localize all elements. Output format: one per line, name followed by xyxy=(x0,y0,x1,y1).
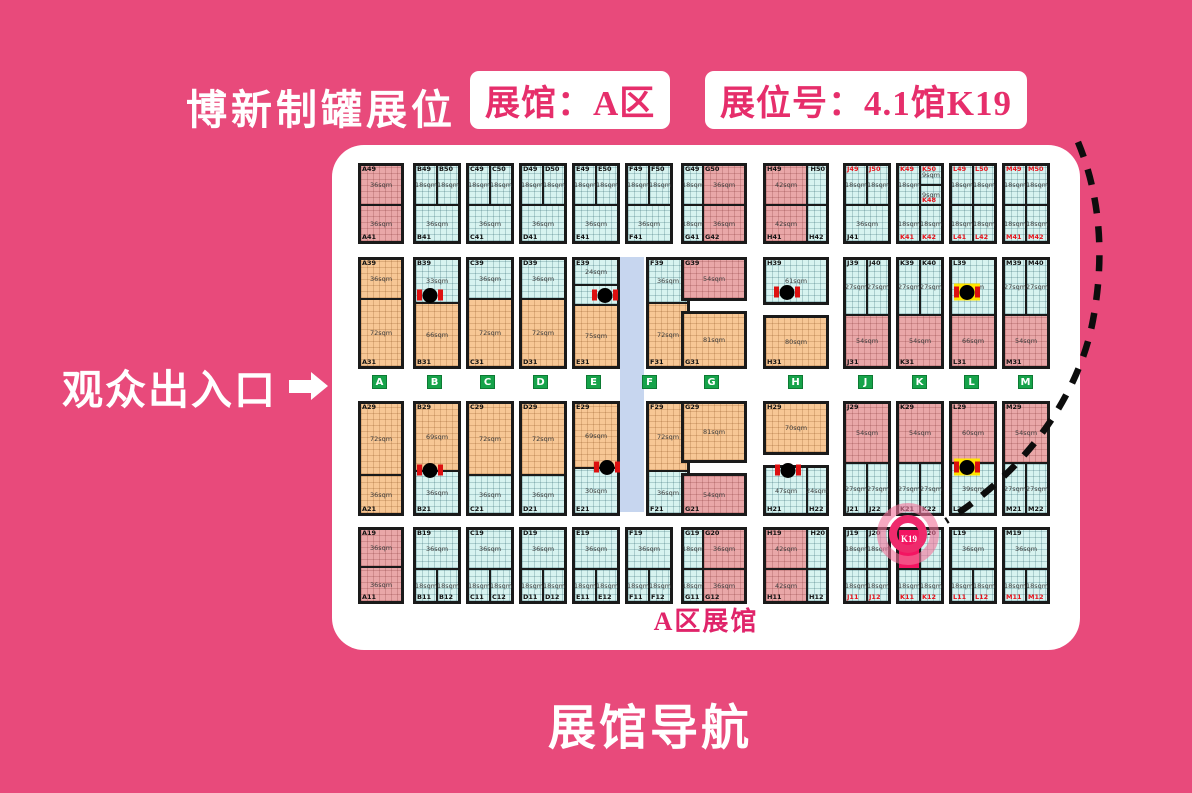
booth-cell: 18sqmD11 xyxy=(521,569,543,602)
booth-id-label: C49 xyxy=(470,166,484,173)
booth-block: 18sqmJ4918sqmJ5036sqmJ41 xyxy=(843,163,891,244)
column-letter-d: D xyxy=(533,375,548,389)
booth-id-label: M50 xyxy=(1028,166,1044,173)
booth-id-label: B12 xyxy=(439,594,453,601)
hydrant-icon xyxy=(417,287,443,304)
booth-area-label: 69sqm xyxy=(426,433,448,441)
booth-cell: 18sqmG49 xyxy=(683,165,703,205)
booth-block: 36sqmB1918sqmB1118sqmB12 xyxy=(413,527,461,604)
booth-block: 33sqmB3966sqmB31 xyxy=(413,257,461,369)
booth-cell: 42sqmH49 xyxy=(765,165,807,205)
booth-id-label: D39 xyxy=(523,260,537,267)
booth-id-label: J40 xyxy=(869,260,880,267)
booth-area-label: 18sqm xyxy=(490,582,512,590)
booth-area-label: 47sqm xyxy=(775,487,797,495)
booth-cell: 18sqmM12 xyxy=(1026,569,1048,602)
booth-block: 18sqmB4918sqmB5036sqmB41 xyxy=(413,163,461,244)
booth-cell: 27sqmM40 xyxy=(1026,259,1048,315)
booth-id-label: B19 xyxy=(417,530,431,537)
booth-cell: 18sqmF12 xyxy=(649,569,671,602)
booth-area-label: 54sqm xyxy=(909,337,931,345)
booth-cell: 18sqmM42 xyxy=(1026,205,1048,242)
booth-block: 18sqmF4918sqmF5036sqmF41 xyxy=(625,163,673,244)
booth-block: 18sqmC4918sqmC5036sqmC41 xyxy=(466,163,514,244)
booth-area-label: 36sqm xyxy=(370,275,392,283)
booth-cell: 54sqmK31 xyxy=(898,315,942,367)
booth-area-label: 72sqm xyxy=(370,329,392,337)
booth-id-label: K11 xyxy=(900,594,914,601)
booth-area-label: 30sqm xyxy=(585,487,607,495)
booth-area-label: 27sqm xyxy=(1004,283,1026,291)
booth-cell: 36sqmG20 xyxy=(703,529,745,569)
hydrant-red-mark xyxy=(438,465,443,476)
booth-id-label: K12 xyxy=(922,594,936,601)
booth-block: 36sqmF1918sqmF1118sqmF12 xyxy=(625,527,673,604)
entrance-label: 观众出入口 xyxy=(62,356,277,416)
booth-id-label: B29 xyxy=(417,404,431,411)
booth-cell: 18sqmB11 xyxy=(415,569,437,602)
booth-id-label: K50 xyxy=(922,166,936,173)
booth-area-label: 18sqm xyxy=(845,545,867,553)
booth-id-label: E29 xyxy=(576,404,590,411)
aisle-corridor xyxy=(620,257,644,512)
booth-id-label: E50 xyxy=(598,166,612,173)
booth-area-label: 18sqm xyxy=(920,582,942,590)
booth-id-label: B41 xyxy=(417,234,431,241)
booth-block: 36sqmA4936sqmA41 xyxy=(358,163,404,244)
booth-cell: 27sqmK39 xyxy=(898,259,920,315)
booth-cell: 36sqmC21 xyxy=(468,475,512,514)
column-letter-f: F xyxy=(642,375,657,389)
booth-cell: 36sqmJ41 xyxy=(845,205,889,242)
booth-id-label: M40 xyxy=(1028,260,1044,267)
booth-area-label: 36sqm xyxy=(638,545,660,553)
booth-area-label: 36sqm xyxy=(426,489,448,497)
booth-id-label: F41 xyxy=(629,234,643,241)
booth-area-label: 18sqm xyxy=(415,181,437,189)
exhibition-navigation-poster: 博新制罐展位 展馆：A区 展位号：4.1馆K19 观众出入口 A区展馆 36sq… xyxy=(0,0,1192,793)
booth-cell: 18sqmD50 xyxy=(543,165,565,205)
booth-id-label: F49 xyxy=(629,166,643,173)
booth-area-label: 18sqm xyxy=(973,220,995,228)
booth-id-label: M12 xyxy=(1028,594,1044,601)
booth-id-label: M49 xyxy=(1006,166,1022,173)
booth-cell: 18sqmL41 xyxy=(951,205,973,242)
booth-id-label: L39 xyxy=(953,260,966,267)
booth-area-label: 36sqm xyxy=(370,581,392,589)
booth-owner-title: 博新制罐展位 xyxy=(186,76,456,136)
booth-cell: 18sqmD12 xyxy=(543,569,565,602)
booth-cell: H42 xyxy=(807,205,827,242)
booth-area-label: 36sqm xyxy=(657,489,679,497)
booth-cell: 18sqmJ12 xyxy=(867,569,889,602)
booth-id-label: F19 xyxy=(629,530,643,537)
hall-tag: 展馆：A区 xyxy=(470,71,670,129)
booth-area-label: 36sqm xyxy=(479,491,501,499)
column-letter-k: K xyxy=(912,375,927,389)
booth-number-label: 展位号：4.1馆K19 xyxy=(720,75,1012,126)
booth-block: 18sqmD4918sqmD5036sqmD41 xyxy=(519,163,567,244)
booth-id-label: H49 xyxy=(767,166,782,173)
hydrant-disc xyxy=(780,285,795,300)
booth-cell: 60sqmL29 xyxy=(951,403,995,463)
booth-id-label: D41 xyxy=(523,234,537,241)
booth-cell: 36sqmA21 xyxy=(360,475,402,514)
booth-area-label: 18sqm xyxy=(649,181,671,189)
hydrant-red-mark xyxy=(796,465,801,476)
booth-cell: 36sqmA49 xyxy=(360,165,402,205)
booth-id-label: M19 xyxy=(1006,530,1022,537)
booth-area-label: 72sqm xyxy=(657,331,679,339)
booth-cell: 42sqmH19 xyxy=(765,529,807,569)
booth-cell: 27sqmJ22 xyxy=(867,463,889,514)
booth-area-label: 36sqm xyxy=(370,220,392,228)
booth-block: 36sqmM1918sqmM1118sqmM12 xyxy=(1002,527,1050,604)
booth-cell: 18sqmM49 xyxy=(1004,165,1026,205)
booth-area-label: 18sqm xyxy=(898,181,920,189)
booth-area-label: 18sqm xyxy=(682,582,704,590)
booth-cell: 18sqmF50 xyxy=(649,165,671,205)
entrance-callout: 观众出入口 xyxy=(62,356,328,416)
booth-id-label: C12 xyxy=(492,594,506,601)
booth-block: 70sqmH29 xyxy=(763,401,829,455)
booth-id-label: D21 xyxy=(523,506,537,513)
booth-block: 54sqmG21 xyxy=(681,473,747,516)
booth-cell: 27sqmJ40 xyxy=(867,259,889,315)
booth-block: 81sqmG29 xyxy=(681,401,747,463)
booth-id-label: J29 xyxy=(847,404,858,411)
booth-id-label: L21 xyxy=(953,506,966,513)
booth-id-label: M22 xyxy=(1028,506,1044,513)
hydrant-disc xyxy=(781,463,796,478)
booth-area-label: 66sqm xyxy=(962,337,984,345)
column-letter-c: C xyxy=(480,375,495,389)
booth-area-label: 36sqm xyxy=(585,545,607,553)
booth-id-label: C39 xyxy=(470,260,484,267)
booth-area-label: 54sqm xyxy=(1015,337,1037,345)
booth-id-label: K29 xyxy=(900,404,914,411)
booth-area-label: 27sqm xyxy=(867,485,889,493)
booth-cell: 18sqmG41 xyxy=(683,205,703,242)
booth-cell: 80sqmH31 xyxy=(765,317,827,367)
booth-area-label: 42sqm xyxy=(775,220,797,228)
hydrant-red-mark xyxy=(592,290,597,301)
hydrant-red-mark xyxy=(438,290,443,301)
booth-cell: 36sqmG12 xyxy=(703,569,745,602)
column-letter-g: G xyxy=(704,375,719,389)
booth-id-label: J12 xyxy=(869,594,880,601)
booth-area-label: 36sqm xyxy=(657,277,679,285)
hydrant-red-mark xyxy=(954,287,959,298)
hydrant-disc xyxy=(600,460,615,475)
booth-cell: 72sqmD31 xyxy=(521,299,565,367)
booth-block: 18sqmM4918sqmM5018sqmM4118sqmM42 xyxy=(1002,163,1050,244)
booth-block: 18sqmG4936sqmG5018sqmG4136sqmG42 xyxy=(681,163,747,244)
booth-id-label: L41 xyxy=(953,234,966,241)
hydrant-red-mark xyxy=(975,287,980,298)
booth-cell: 18sqmG19 xyxy=(683,529,703,569)
booth-cell: 18sqmM41 xyxy=(1004,205,1026,242)
booth-cell: 72sqmD29 xyxy=(521,403,565,475)
booth-area-label: 24sqm xyxy=(806,487,828,495)
booth-id-label: A29 xyxy=(362,404,376,411)
booth-area-label: 18sqm xyxy=(543,181,565,189)
booth-id-label: D50 xyxy=(545,166,559,173)
booth-cell: H50 xyxy=(807,165,827,205)
booth-cell: 18sqmJ11 xyxy=(845,569,867,602)
booth-block: 36sqmE1918sqmE1118sqmE12 xyxy=(572,527,620,604)
booth-cell: 36sqmA41 xyxy=(360,205,402,242)
booth-id-label: E39 xyxy=(576,260,590,267)
booth-id-label: C21 xyxy=(470,506,484,513)
booth-cell: 18sqmB49 xyxy=(415,165,437,205)
booth-id-label: L11 xyxy=(953,594,966,601)
booth-cell: 66sqmB31 xyxy=(415,303,459,367)
booth-block: 36sqmL1918sqmL1118sqmL12 xyxy=(949,527,997,604)
booth-area-label: 18sqm xyxy=(415,582,437,590)
booth-block: 18sqmK499sqmK509sqmK4818sqmK4118sqmK42 xyxy=(896,163,944,244)
booth-id-label: G21 xyxy=(685,506,699,513)
booth-area-label: 36sqm xyxy=(479,220,501,228)
booth-id-label: H19 xyxy=(767,530,782,537)
booth-area-label: 36sqm xyxy=(370,181,392,189)
hydrant-red-mark xyxy=(417,465,422,476)
booth-id-label: G50 xyxy=(705,166,719,173)
booth-cell: 81sqmG29 xyxy=(683,403,745,461)
booth-cell: 18sqmC12 xyxy=(490,569,512,602)
booth-area-label: 54sqm xyxy=(703,491,725,499)
map-caption: A区展馆 xyxy=(332,601,1080,638)
booth-area-label: 18sqm xyxy=(973,181,995,189)
booth-block: 36sqmA1936sqmA11 xyxy=(358,527,404,604)
booth-cell: 72sqmC31 xyxy=(468,299,512,367)
booth-cell: 72sqmC29 xyxy=(468,403,512,475)
booth-id-label: A11 xyxy=(362,594,376,601)
booth-area-label: 36sqm xyxy=(532,491,554,499)
booth-cell: 54sqmJ31 xyxy=(845,315,889,367)
booth-area-label: 42sqm xyxy=(775,181,797,189)
booth-id-label: D12 xyxy=(545,594,559,601)
booth-id-label: E19 xyxy=(576,530,590,537)
booth-cell: 18sqmB12 xyxy=(437,569,459,602)
booth-area-label: 27sqm xyxy=(898,485,920,493)
hydrant-icon xyxy=(774,284,800,301)
booth-area-label: 70sqm xyxy=(785,424,807,432)
booth-cell: 54sqmG39 xyxy=(683,259,745,299)
booth-cell: 36sqmB19 xyxy=(415,529,459,569)
booth-id-label: L12 xyxy=(975,594,988,601)
booth-cell: 66sqmL31 xyxy=(951,315,995,367)
booth-block: 33sqmL3966sqmL31 xyxy=(949,257,997,369)
booth-area-label: 18sqm xyxy=(1004,181,1026,189)
booth-id-label: B31 xyxy=(417,359,431,366)
booth-id-label: H22 xyxy=(809,506,824,513)
page-caption: 展馆导航 xyxy=(548,688,752,758)
booth-area-label: 81sqm xyxy=(703,336,725,344)
booth-area-label: 36sqm xyxy=(638,220,660,228)
booth-area-label: 18sqm xyxy=(845,181,867,189)
booth-id-label: F29 xyxy=(650,404,664,411)
booth-cell: 18sqmB50 xyxy=(437,165,459,205)
booth-area-label: 36sqm xyxy=(713,582,735,590)
booth-id-label: G20 xyxy=(705,530,719,537)
booth-cell: 18sqmL11 xyxy=(951,569,973,602)
booth-id-label: C11 xyxy=(470,594,484,601)
booth-area-label: 18sqm xyxy=(867,582,889,590)
booth-area-label: 81sqm xyxy=(703,428,725,436)
booth-cell: 54sqmM29 xyxy=(1004,403,1048,463)
booth-id-label: A21 xyxy=(362,506,376,513)
column-letter-a: A xyxy=(372,375,387,389)
hydrant-icon xyxy=(954,459,980,476)
booth-cell: 18sqmL12 xyxy=(973,569,995,602)
hydrant-red-mark xyxy=(975,462,980,473)
hydrant-red-mark xyxy=(613,290,618,301)
booth-id-label: H12 xyxy=(809,594,824,601)
booth-id-label: J31 xyxy=(847,359,858,366)
booth-id-label: K40 xyxy=(922,260,936,267)
booth-cell: 72sqmA29 xyxy=(360,403,402,475)
booth-area-label: 72sqm xyxy=(479,329,501,337)
booth-area-label: 18sqm xyxy=(920,220,942,228)
booth-cell: 18sqmK41 xyxy=(898,205,920,242)
booth-block: 36sqmC3972sqmC31 xyxy=(466,257,514,369)
floor-map: A区展馆 36sqmA4936sqmA4118sqmB4918sqmB5036s… xyxy=(332,145,1080,650)
booth-block: 54sqmJ2927sqmJ2127sqmJ22 xyxy=(843,401,891,516)
booth-cell: 42sqmH41 xyxy=(765,205,807,242)
booth-area-label: 18sqm xyxy=(951,220,973,228)
booth-area-label: 27sqm xyxy=(845,283,867,291)
booth-id-label: G39 xyxy=(685,260,699,267)
booth-block: 27sqmJ3927sqmJ4054sqmJ31 xyxy=(843,257,891,369)
booth-block: 54sqmK2927sqmK2127sqmK22 xyxy=(896,401,944,516)
booth-cell: 18sqmF11 xyxy=(627,569,649,602)
booth-cell: 18sqmK12 xyxy=(920,569,942,602)
booth-block: 42sqmH49H5042sqmH41H42 xyxy=(763,163,829,244)
booth-id-label: K48 xyxy=(922,197,936,204)
booth-area-label: 18sqm xyxy=(437,582,459,590)
booth-cell: 27sqmM21 xyxy=(1004,463,1026,514)
booth-block: 72sqmC2936sqmC21 xyxy=(466,401,514,516)
booth-cell: 36sqmD19 xyxy=(521,529,565,569)
booth-number-tag: 展位号：4.1馆K19 xyxy=(705,71,1027,129)
booth-block: 36sqmD1918sqmD1118sqmD12 xyxy=(519,527,567,604)
booth-id-label: H21 xyxy=(767,506,782,513)
booth-id-label: M39 xyxy=(1006,260,1022,267)
booth-area-label: 18sqm xyxy=(682,181,704,189)
booth-id-label: L49 xyxy=(953,166,966,173)
booth-area-label: 18sqm xyxy=(682,220,704,228)
booth-block: 72sqmD2936sqmD21 xyxy=(519,401,567,516)
booth-area-label: 18sqm xyxy=(898,220,920,228)
booth-cell: 18sqmJ49 xyxy=(845,165,867,205)
booth-id-label: J19 xyxy=(847,530,858,537)
booth-cell: 36sqmE41 xyxy=(574,205,618,242)
hydrant-disc xyxy=(423,463,438,478)
booth-cell: 36sqmF41 xyxy=(627,205,671,242)
booth-cell: H12 xyxy=(807,569,827,602)
booth-cell: 36sqmC19 xyxy=(468,529,512,569)
booth-area-label: 27sqm xyxy=(920,283,942,291)
booth-area-label: 36sqm xyxy=(1015,545,1037,553)
booth-area-label: 72sqm xyxy=(532,435,554,443)
booth-id-label: B21 xyxy=(417,506,431,513)
booth-area-label: 18sqm xyxy=(1004,220,1026,228)
booth-cell: 18sqmJ50 xyxy=(867,165,889,205)
booth-area-label: 36sqm xyxy=(856,220,878,228)
hydrant-icon xyxy=(954,284,980,301)
booth-cell: 36sqmD41 xyxy=(521,205,565,242)
booth-cell: 27sqmM39 xyxy=(1004,259,1026,315)
hydrant-disc xyxy=(423,288,438,303)
booth-area-label: 18sqm xyxy=(1026,582,1048,590)
booth-area-label: 42sqm xyxy=(775,582,797,590)
booth-id-label: F21 xyxy=(650,506,664,513)
hydrant-disc xyxy=(598,288,613,303)
booth-area-label: 33sqm xyxy=(426,277,448,285)
hydrant-red-mark xyxy=(594,462,599,473)
booth-cell: 18sqmJ19 xyxy=(845,529,867,569)
booth-area-label: 27sqm xyxy=(920,485,942,493)
booth-cell: 18sqmE12 xyxy=(596,569,618,602)
booth-block: 80sqmH31 xyxy=(763,315,829,369)
booth-cell: 18sqmC11 xyxy=(468,569,490,602)
hydrant-disc xyxy=(960,285,975,300)
hydrant-red-mark xyxy=(615,462,620,473)
booth-area-label: 54sqm xyxy=(856,429,878,437)
hydrant-icon xyxy=(592,287,618,304)
booth-id-label: G12 xyxy=(705,594,719,601)
entrance-arrow-icon xyxy=(289,372,328,400)
booth-area-label: 36sqm xyxy=(370,544,392,552)
booth-id-label: H29 xyxy=(767,404,782,411)
booth-cell: 18sqmG11 xyxy=(683,569,703,602)
booth-cell: 27sqmM22 xyxy=(1026,463,1048,514)
booth-area-label: 36sqm xyxy=(426,220,448,228)
booth-id-label: A41 xyxy=(362,234,376,241)
booth-block: 36sqmA3972sqmA31 xyxy=(358,257,404,369)
booth-area-label: 27sqm xyxy=(867,283,889,291)
booth-cell: 36sqmG50 xyxy=(703,165,745,205)
booth-area-label: 18sqm xyxy=(649,582,671,590)
booth-area-label: 36sqm xyxy=(532,545,554,553)
booth-id-label: F11 xyxy=(629,594,643,601)
booth-id-label: E49 xyxy=(576,166,590,173)
booth-id-label: M21 xyxy=(1006,506,1022,513)
booth-cell: 18sqmL50 xyxy=(973,165,995,205)
booth-id-label: J11 xyxy=(847,594,858,601)
booth-area-label: 60sqm xyxy=(962,429,984,437)
booth-id-label: B49 xyxy=(417,166,431,173)
booth-cell: 75sqmE31 xyxy=(574,305,618,367)
booth-block: 36sqmC1918sqmC1118sqmC12 xyxy=(466,527,514,604)
booth-id-label: E12 xyxy=(598,594,612,601)
booth-area-label: 18sqm xyxy=(951,181,973,189)
booth-id-label: J21 xyxy=(847,506,858,513)
column-letter-b: B xyxy=(427,375,442,389)
booth-area-label: 36sqm xyxy=(713,220,735,228)
booth-id-label: L42 xyxy=(975,234,988,241)
booth-area-label: 36sqm xyxy=(713,545,735,553)
hydrant-red-mark xyxy=(795,287,800,298)
booth-id-label: G19 xyxy=(685,530,699,537)
booth-id-label: K39 xyxy=(900,260,914,267)
booth-id-label: B39 xyxy=(417,260,431,267)
booth-area-label: 36sqm xyxy=(713,181,735,189)
booth-id-label: B50 xyxy=(439,166,453,173)
booth-block: 27sqmK3927sqmK4054sqmK31 xyxy=(896,257,944,369)
booth-area-label: 27sqm xyxy=(898,283,920,291)
